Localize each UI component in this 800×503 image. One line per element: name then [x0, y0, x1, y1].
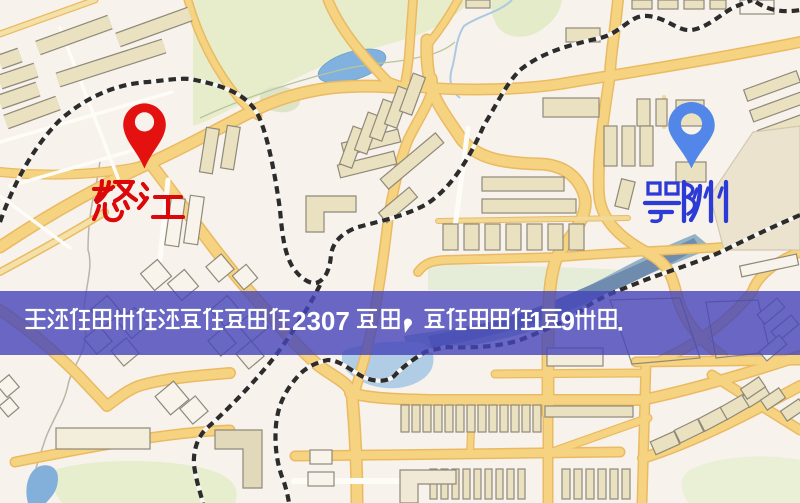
svg-text:1: 1: [529, 306, 543, 336]
svg-text:2307: 2307: [292, 306, 350, 336]
svg-text:9: 9: [561, 306, 575, 336]
